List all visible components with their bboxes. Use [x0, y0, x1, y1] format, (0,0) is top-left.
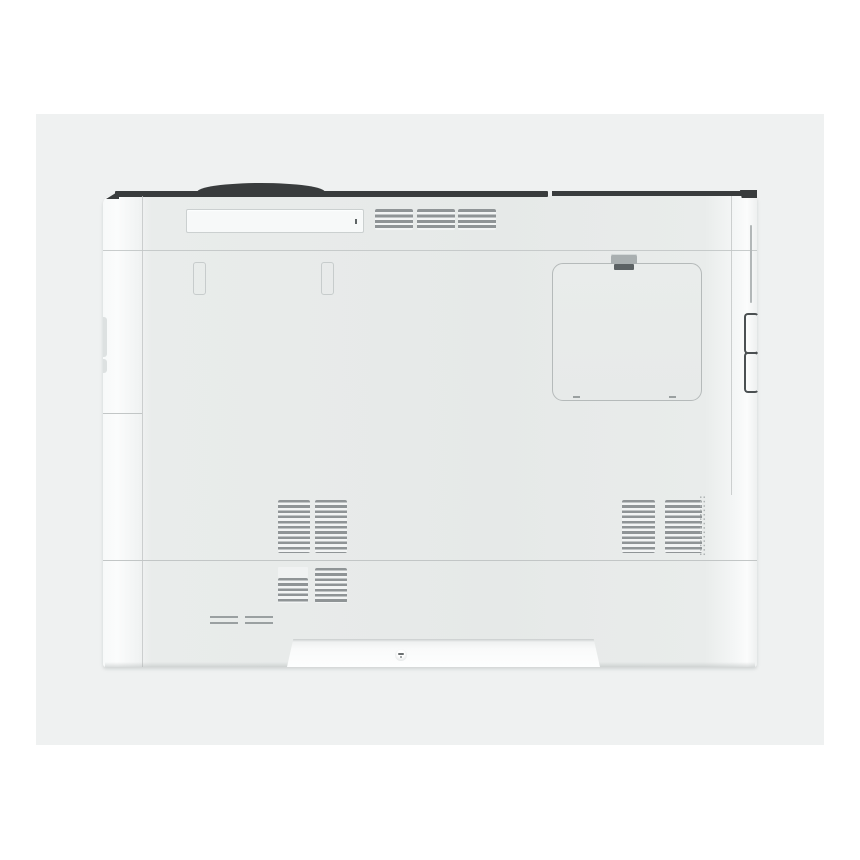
- top-edge-strip-left: [115, 191, 548, 197]
- left-edge-notch-lower: [103, 359, 107, 373]
- access-panel-door: [552, 263, 702, 401]
- left-band-horizontal-seam: [103, 413, 142, 414]
- perforation-dots: [699, 495, 706, 557]
- bottom-recess: [287, 639, 600, 667]
- top-handle-slot: [186, 209, 364, 233]
- access-panel-screw-mark-right: [669, 396, 676, 398]
- photo-stage: [0, 0, 860, 860]
- side-handle-recess-lower: [744, 352, 759, 393]
- rating-label-lines-1: [210, 616, 238, 625]
- side-groove: [750, 225, 752, 303]
- mid-vent-left-col-1: [278, 500, 310, 553]
- side-handle-recess-upper: [744, 313, 759, 354]
- slot-latch-mark: [355, 219, 357, 224]
- mid-vent-right-col-1: [622, 500, 655, 553]
- printer: [103, 183, 757, 667]
- top-section-seam: [103, 250, 757, 251]
- right-band-seam: [731, 196, 732, 495]
- lower-vent-blank-patch: [278, 567, 308, 578]
- top-vent-group-2: [417, 209, 455, 230]
- mid-vent-left-col-2: [315, 500, 347, 553]
- mid-vent-right-col-2: [665, 500, 702, 553]
- access-panel-latch: [611, 254, 637, 264]
- top-edge-right-corner: [740, 190, 757, 198]
- hinge-cutout-left: [193, 262, 206, 295]
- recess-screw: [395, 649, 407, 661]
- recess-screw-dot: [400, 656, 402, 658]
- top-vent-group-3: [458, 209, 496, 230]
- left-edge-notch-upper: [103, 317, 107, 357]
- rating-label-lines-2: [245, 616, 273, 625]
- recess-screw-slot: [398, 653, 404, 655]
- top-vent-group-1: [375, 209, 413, 230]
- hinge-cutout-right: [321, 262, 334, 295]
- top-edge-strip-right: [552, 191, 748, 196]
- paper-tray-seam: [103, 560, 757, 561]
- lower-vent-left-col: [278, 578, 308, 603]
- left-band-seam: [142, 196, 143, 667]
- access-panel-latch-grip: [614, 264, 634, 270]
- lower-vent-right-col: [315, 568, 347, 603]
- access-panel-screw-mark-left: [573, 396, 580, 398]
